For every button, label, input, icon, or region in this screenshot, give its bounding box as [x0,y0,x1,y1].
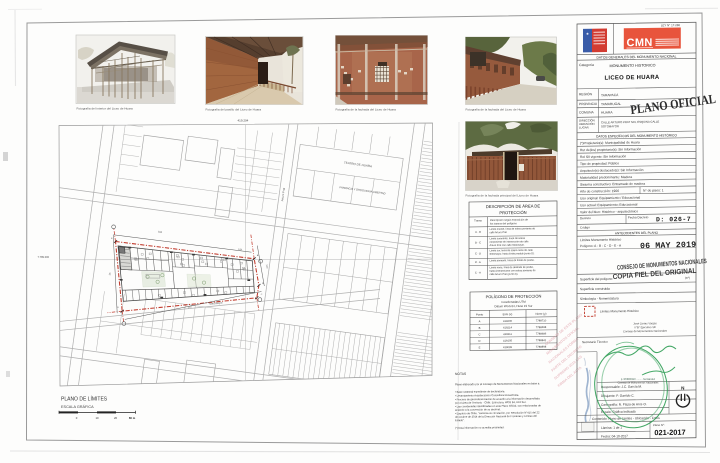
svg-text:Norte (y): Norte (y) [536,312,547,316]
svg-text:Categoría: Categoría [579,63,594,67]
svg-text:D: D [479,339,481,343]
svg-text:Plano N°:: Plano N°: [653,423,665,427]
svg-text:E: E [479,345,481,349]
svg-text:José Cortez Vargas: José Cortez Vargas [633,321,657,325]
svg-text:Rol SII vigente: Sin Informaci: Rol SII vigente: Sin Información [580,154,626,159]
svg-text:Fotografía del interior del Li: Fotografía del interior del Liceo de Hua… [77,107,134,111]
svg-text:Descripción según exposición d: Descripción según exposición de [490,217,528,221]
svg-text:TAMARUGAL: TAMARUGAL [601,102,621,106]
svg-text:7.789.000: 7.789.000 [38,255,50,259]
svg-text:HUARA: HUARA [601,110,613,114]
svg-text:los tramos del polígono: los tramos del polígono [490,221,517,225]
svg-text:(*) Esta información no acredi: (*) Esta información no acredita propied… [455,425,505,430]
svg-text:V°B° Ejecutivo SE: V°B° Ejecutivo SE [634,325,656,329]
svg-text:B - C: B - C [475,240,481,244]
svg-text:Límites Monumento Histórico: Límites Monumento Histórico [580,238,622,243]
svg-text:A - B: A - B [475,230,481,234]
svg-text:Materialidad predominante: Mad: Materialidad predominante: Madera [580,175,632,180]
svg-text:PROTECCIÓN: PROTECCIÓN [499,210,526,215]
svg-text:ESCALA GRÁFICA: ESCALA GRÁFICA [61,405,94,409]
svg-text:Fotografía de la fachada princ: Fotografía de la fachada principal del L… [466,193,539,197]
svg-text:PLANO DE LÍMITES: PLANO DE LÍMITES [61,396,108,403]
svg-text:POLÍGONO DE PROTECCIÓN: POLÍGONO DE PROTECCIÓN [486,294,542,300]
svg-text:LICEO DE HUARA: LICEO DE HUARA [605,75,660,82]
svg-text:7788710: 7788710 [536,318,547,322]
svg-text:Valor del bien: Histórico - ar: Valor del bien: Histórico - arquitectóni… [580,209,638,214]
svg-text:Fotografía de la fachada del L: Fotografía de la fachada del Liceo de Hu… [466,108,527,112]
svg-text:Superficie construida: Superficie construida [580,287,610,291]
svg-text:B: B [479,326,481,330]
svg-text:E - A: E - A [475,270,481,274]
svg-text:SOTOMAYOR: SOTOMAYOR [601,124,619,128]
svg-text:60 m: 60 m [129,416,136,420]
svg-text:Fotografía de la fachada del L: Fotografía de la fachada del Liceo de Hu… [336,107,397,111]
svg-text:Límites Monumento Histórico: Límites Monumento Histórico [600,309,639,314]
svg-text:Tramo: Tramo [474,218,482,222]
svg-text:Secretario Técnico: Secretario Técnico [582,340,608,344]
svg-text:Fotografía del pasillo del Lic: Fotografía del pasillo del Liceo de Huar… [206,108,262,112]
svg-text:419214: 419214 [503,325,512,329]
svg-text:Superficie del polígono: Superficie del polígono [580,277,613,281]
svg-text:Punto: Punto [476,312,484,316]
svg-text:NOTAS: NOTAS [455,372,467,376]
svg-text:CMN: CMN [627,37,653,49]
svg-text:7788686: 7788686 [536,332,547,336]
svg-text:C: C [479,332,481,336]
svg-text:TARAPACÁ: TARAPACÁ [601,93,619,97]
svg-text:Uso actual: Equipamiento; Educ: Uso actual: Equipamiento; Educacional [580,203,638,208]
svg-text:Datum WGS 84, Huso 19 Sur: Datum WGS 84, Huso 19 Sur [495,304,533,308]
svg-text:D - E: D - E [475,260,481,264]
svg-text:LEY N° 17.288: LEY N° 17.288 [661,23,680,27]
svg-text:419211: 419211 [503,332,512,336]
svg-text:021-2017: 021-2017 [654,428,685,437]
svg-text:LUGAR: LUGAR [579,125,589,129]
svg-text:Consejo de Monumentos Nacional: Consejo de Monumentos Nacionales [618,381,660,384]
svg-text:Fecha: 04-10-2017: Fecha: 04-10-2017 [601,434,628,438]
svg-text:Fecha Decreto: Fecha Decreto [628,215,649,219]
svg-text:06 MAY 2019: 06 MAY 2019 [640,241,696,251]
svg-text:ANTECEDENTES DEL PLANO: ANTECEDENTES DEL PLANO [615,231,659,236]
svg-text:A: A [479,319,481,323]
svg-text:Límite poniente, línea de fond: Límite poniente, línea de fondo de predi… [489,259,534,263]
svg-text:calle Arturo Prat (punto A).: calle Arturo Prat (punto A). [489,273,518,276]
svg-text:REGIÓN: REGIÓN [579,91,593,96]
svg-text:Responsable: J.C. García M.: Responsable: J.C. García M. [601,385,642,390]
svg-text:Consejo de Monumentos Nacional: Consejo de Monumentos Nacionales [623,329,668,334]
svg-text:D: 026-7: D: 026-7 [656,216,691,224]
svg-text:Simbología - Nomenclatura: Simbología - Nomenclatura [580,296,619,301]
svg-text:Polígono: A - B - C - D - E -: Polígono: A - B - C - D - E - A [580,244,622,249]
svg-text:COMUNA: COMUNA [579,110,594,114]
svg-text:Estado”.: Estado”. [455,418,465,422]
svg-text:PROVINCIA: PROVINCIA [579,102,598,106]
svg-text:20: 20 [114,416,118,420]
svg-text:Sotomayor, hasta límite predia: Sotomayor, hasta límite predial (punto D… [489,252,534,256]
svg-text:calle Arturo Prat: calle Arturo Prat [489,231,507,234]
svg-text:Año de construcción: 1906: Año de construcción: 1906 [580,189,619,194]
svg-text:Decreto: Decreto [580,216,591,220]
svg-text:Lámina: 1 de 1: Lámina: 1 de 1 [601,426,622,430]
svg-text:Arturo Prat con calle Sotomayo: Arturo Prat con calle Sotomayor. [489,244,524,247]
svg-text:419099: 419099 [503,345,512,349]
svg-text:Este (x): Este (x) [503,312,513,316]
svg-text:DESCRIPCIÓN DE ÁREA DE: DESCRIPCIÓN DE ÁREA DE [486,203,540,209]
svg-text:MONUMENTO HISTORICO: MONUMENTO HISTORICO [610,63,656,68]
svg-text:N° de pisos: 1: N° de pisos: 1 [643,188,664,192]
svg-text:10: 10 [95,416,99,420]
svg-text:C - D: C - D [475,251,481,255]
svg-text:419.204: 419.204 [238,118,249,122]
svg-text:Tipo de propiedad: Público: Tipo de propiedad: Público [580,161,619,166]
svg-text:Escala: Gráfica Indicada: Escala: Gráfica Indicada [601,410,636,415]
svg-text:Código: Código [580,225,590,229]
svg-text:419206: 419206 [503,319,512,323]
svg-text:Dibujante: P. Garrido C.: Dibujante: P. Garrido C. [601,394,635,398]
svg-text:419105: 419105 [503,339,512,343]
svg-text:(m²): (m²) [685,276,690,280]
svg-text:7788698: 7788698 [536,325,547,329]
